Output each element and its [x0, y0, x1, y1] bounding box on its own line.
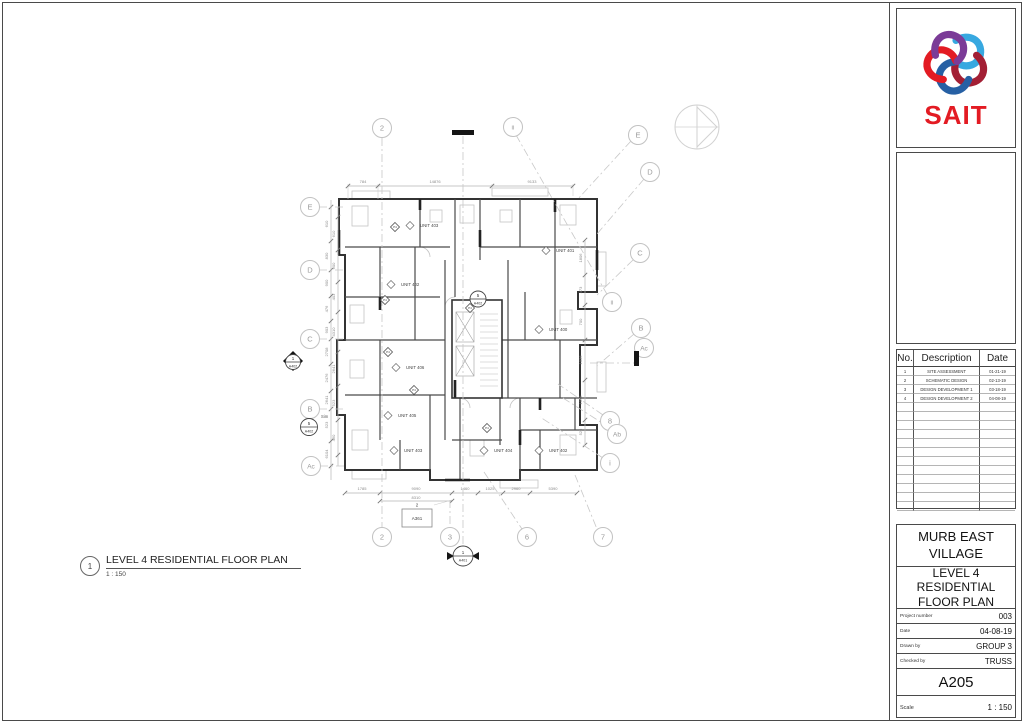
- revision-empty-cell: [914, 484, 980, 493]
- revision-empty-cell: [897, 493, 914, 502]
- svg-text:610: 610: [324, 220, 329, 227]
- svg-text:Ab: Ab: [613, 431, 621, 438]
- drawing-sheet: 7841487691331785909014601025296053908310…: [0, 0, 1024, 723]
- svg-text:A402: A402: [474, 302, 482, 306]
- field-label: Project number: [900, 614, 933, 619]
- svg-text:476: 476: [324, 305, 329, 312]
- field-label: Date: [900, 629, 910, 634]
- revision-empty-cell: [914, 403, 980, 412]
- revision-empty-cell: [980, 439, 1015, 448]
- svg-text:A402: A402: [305, 430, 313, 434]
- svg-text:523: 523: [331, 399, 336, 406]
- revision-empty-cell: [914, 421, 980, 430]
- field-value: 003: [999, 612, 1012, 621]
- svg-text:P4: P4: [468, 306, 472, 310]
- svg-text:403: 403: [331, 293, 336, 300]
- svg-text:1036: 1036: [578, 355, 583, 365]
- logo-box: SAIT: [896, 8, 1016, 148]
- svg-text:2: 2: [380, 533, 384, 542]
- svg-text:D: D: [307, 266, 313, 275]
- svg-text:C: C: [637, 249, 643, 258]
- svg-text:900: 900: [324, 279, 329, 286]
- svg-text:UNIT 404: UNIT 404: [494, 448, 513, 453]
- svg-text:610: 610: [331, 230, 336, 237]
- scale-value: 1 : 150: [988, 703, 1012, 712]
- svg-text:523: 523: [324, 421, 329, 428]
- revision-empty-cell: [914, 502, 980, 511]
- revision-cell: 04-08-19: [980, 394, 1015, 403]
- svg-text:1785: 1785: [358, 486, 368, 491]
- revision-empty-cell: [980, 493, 1015, 502]
- svg-text:E: E: [307, 203, 312, 212]
- revision-cell: 4: [897, 394, 914, 403]
- revision-empty-cell: [897, 466, 914, 475]
- revision-empty-cell: [980, 430, 1015, 439]
- svg-text:1460: 1460: [461, 486, 471, 491]
- svg-text:P4: P4: [386, 350, 390, 354]
- svg-text:1806: 1806: [578, 253, 583, 263]
- revision-header: Date: [980, 350, 1015, 367]
- svg-text:2641: 2641: [324, 395, 329, 405]
- revision-empty-cell: [897, 457, 914, 466]
- scale-row: Scale 1 : 150: [897, 696, 1015, 719]
- revision-cell: DESIGN DEVELOPMENT 1: [914, 385, 980, 394]
- svg-text:ii: ii: [512, 124, 515, 131]
- svg-text:2476: 2476: [324, 373, 329, 383]
- revision-cell: 03-18-19: [980, 385, 1015, 394]
- svg-text:9090: 9090: [412, 486, 422, 491]
- view-scale-text: 1 : 150: [106, 571, 301, 578]
- revision-empty-cell: [897, 421, 914, 430]
- revision-cell: SITE ASSESSMENT: [914, 367, 980, 376]
- title-block-field: Date04-08-19: [897, 624, 1015, 639]
- project-name: MURB EAST VILLAGE: [897, 525, 1015, 567]
- view-title-text: LEVEL 4 RESIDENTIAL FLOOR PLAN: [106, 554, 301, 566]
- svg-text:6104: 6104: [324, 449, 329, 459]
- revision-empty-cell: [897, 484, 914, 493]
- stair-treads: [480, 314, 498, 386]
- revision-empty-cell: [980, 448, 1015, 457]
- svg-text:ii: ii: [611, 299, 614, 306]
- field-value: 04-08-19: [980, 627, 1012, 636]
- svg-text:UNIT 400: UNIT 400: [549, 327, 568, 332]
- svg-text:830: 830: [324, 252, 329, 259]
- revision-empty-cell: [897, 475, 914, 484]
- elevator-cars: [456, 312, 474, 376]
- svg-text:P4: P4: [485, 426, 489, 430]
- svg-text:6: 6: [525, 533, 529, 542]
- svg-text:B: B: [638, 324, 643, 333]
- revision-empty-cell: [980, 484, 1015, 493]
- svg-text:8: 8: [608, 417, 612, 426]
- svg-text:Sim: Sim: [321, 414, 329, 419]
- revision-empty-cell: [914, 457, 980, 466]
- sait-logo-icon: [920, 26, 992, 98]
- svg-text:UNIT 401: UNIT 401: [556, 248, 575, 253]
- revision-empty-cell: [980, 412, 1015, 421]
- svg-text:2708: 2708: [324, 347, 329, 357]
- svg-text:UNIT 405: UNIT 405: [398, 413, 417, 418]
- revision-empty-cell: [914, 493, 980, 502]
- svg-text:C: C: [307, 335, 313, 344]
- revision-empty-cell: [897, 412, 914, 421]
- svg-text:3: 3: [448, 533, 452, 542]
- revision-empty-cell: [980, 466, 1015, 475]
- view-title-rule: [106, 568, 301, 569]
- sait-wordmark: SAIT: [924, 100, 987, 131]
- revision-empty-cell: [914, 439, 980, 448]
- svg-text:903: 903: [324, 326, 329, 333]
- svg-text:523: 523: [578, 428, 583, 435]
- interior-partitions: [345, 199, 597, 480]
- svg-text:700: 700: [578, 318, 583, 325]
- field-label: Drawn by: [900, 644, 920, 649]
- view-title: 1 LEVEL 4 RESIDENTIAL FLOOR PLAN 1 : 150: [80, 554, 301, 578]
- revision-header: No.: [897, 350, 914, 367]
- field-value: TRUSS: [985, 657, 1012, 666]
- svg-text:8310: 8310: [412, 495, 422, 500]
- revision-empty-cell: [897, 403, 914, 412]
- revision-empty-cell: [980, 502, 1015, 511]
- svg-text:UNIT 402: UNIT 402: [401, 282, 420, 287]
- svg-text:2: 2: [416, 503, 419, 508]
- title-block-field: Checked byTRUSS: [897, 654, 1015, 669]
- field-value: GROUP 3: [976, 642, 1012, 651]
- plan-light-work: [350, 188, 606, 488]
- svg-text:P4: P4: [393, 225, 397, 229]
- revision-empty-cell: [980, 403, 1015, 412]
- svg-text:UNIT 403: UNIT 403: [420, 223, 439, 228]
- svg-text:900: 900: [331, 262, 336, 269]
- north-arrow-icon: [675, 105, 719, 149]
- svg-text:D: D: [647, 168, 653, 177]
- revision-empty-cell: [914, 475, 980, 484]
- svg-text:14876: 14876: [429, 179, 441, 184]
- title-block-field: Drawn byGROUP 3: [897, 639, 1015, 654]
- field-label: Checked by: [900, 659, 925, 664]
- view-number-bubble: 1: [80, 556, 100, 576]
- svg-text:P4: P4: [383, 298, 387, 302]
- revision-empty-cell: [897, 502, 914, 511]
- svg-text:473: 473: [578, 286, 583, 293]
- revision-cell: 3: [897, 385, 914, 394]
- svg-text:P4: P4: [412, 388, 416, 392]
- svg-text:UNIT 403: UNIT 403: [404, 448, 423, 453]
- floor-plan-drawing: 7841487691331785909014601025296053908310…: [0, 0, 1024, 723]
- svg-text:UNIT 406: UNIT 406: [406, 365, 425, 370]
- sheet-number: A205: [897, 669, 1015, 696]
- revision-empty-cell: [980, 457, 1015, 466]
- svg-text:A401: A401: [459, 559, 467, 563]
- svg-text:784: 784: [360, 179, 367, 184]
- revision-cell: 02-13-19: [980, 376, 1015, 385]
- revision-cell: SCHEMATIC DESIGN: [914, 376, 980, 385]
- revision-cell: DESIGN DEVELOPMENT 2: [914, 394, 980, 403]
- svg-text:5390: 5390: [549, 486, 559, 491]
- revision-empty-cell: [980, 475, 1015, 484]
- svg-text:2960: 2960: [512, 486, 522, 491]
- svg-text:A402: A402: [289, 365, 297, 369]
- scale-label: Scale: [900, 705, 914, 711]
- svg-text:7: 7: [601, 533, 605, 542]
- plan-walls: [337, 199, 597, 480]
- svg-text:4310: 4310: [331, 327, 336, 337]
- elevator-core: [452, 300, 502, 398]
- svg-text:UNIT 402: UNIT 402: [549, 448, 568, 453]
- revision-empty-cell: [914, 448, 980, 457]
- revision-header: Description: [914, 350, 980, 367]
- svg-text:2641: 2641: [331, 364, 336, 374]
- project-info-block: MURB EAST VILLAGE LEVEL 4 RESIDENTIAL FL…: [896, 524, 1016, 718]
- svg-text:B: B: [307, 405, 312, 414]
- title-block-field: Project number003: [897, 609, 1015, 624]
- revision-table: No.DescriptionDate1SITE ASSESSMENT01-21-…: [896, 349, 1016, 509]
- revision-empty-cell: [914, 412, 980, 421]
- svg-text:460: 460: [331, 434, 336, 441]
- svg-text:2: 2: [380, 124, 384, 133]
- revision-empty-cell: [980, 421, 1015, 430]
- svg-text:9133: 9133: [528, 179, 538, 184]
- unit-labels: UNIT 403UNIT 401UNIT 402UNIT 400UNIT 406…: [381, 222, 575, 455]
- revision-empty-cell: [897, 430, 914, 439]
- stamp-box: [896, 152, 1016, 344]
- sheet-title: LEVEL 4 RESIDENTIAL FLOOR PLAN: [897, 567, 1015, 609]
- revision-empty-cell: [914, 430, 980, 439]
- revision-empty-cell: [897, 439, 914, 448]
- revision-cell: 2: [897, 376, 914, 385]
- revision-cell: 1: [897, 367, 914, 376]
- svg-text:E: E: [635, 131, 640, 140]
- svg-text:A361: A361: [412, 516, 423, 521]
- revision-empty-cell: [914, 466, 980, 475]
- svg-text:Ac: Ac: [307, 463, 315, 470]
- svg-text:Ac: Ac: [640, 345, 648, 352]
- revision-cell: 01-21-19: [980, 367, 1015, 376]
- revision-empty-cell: [897, 448, 914, 457]
